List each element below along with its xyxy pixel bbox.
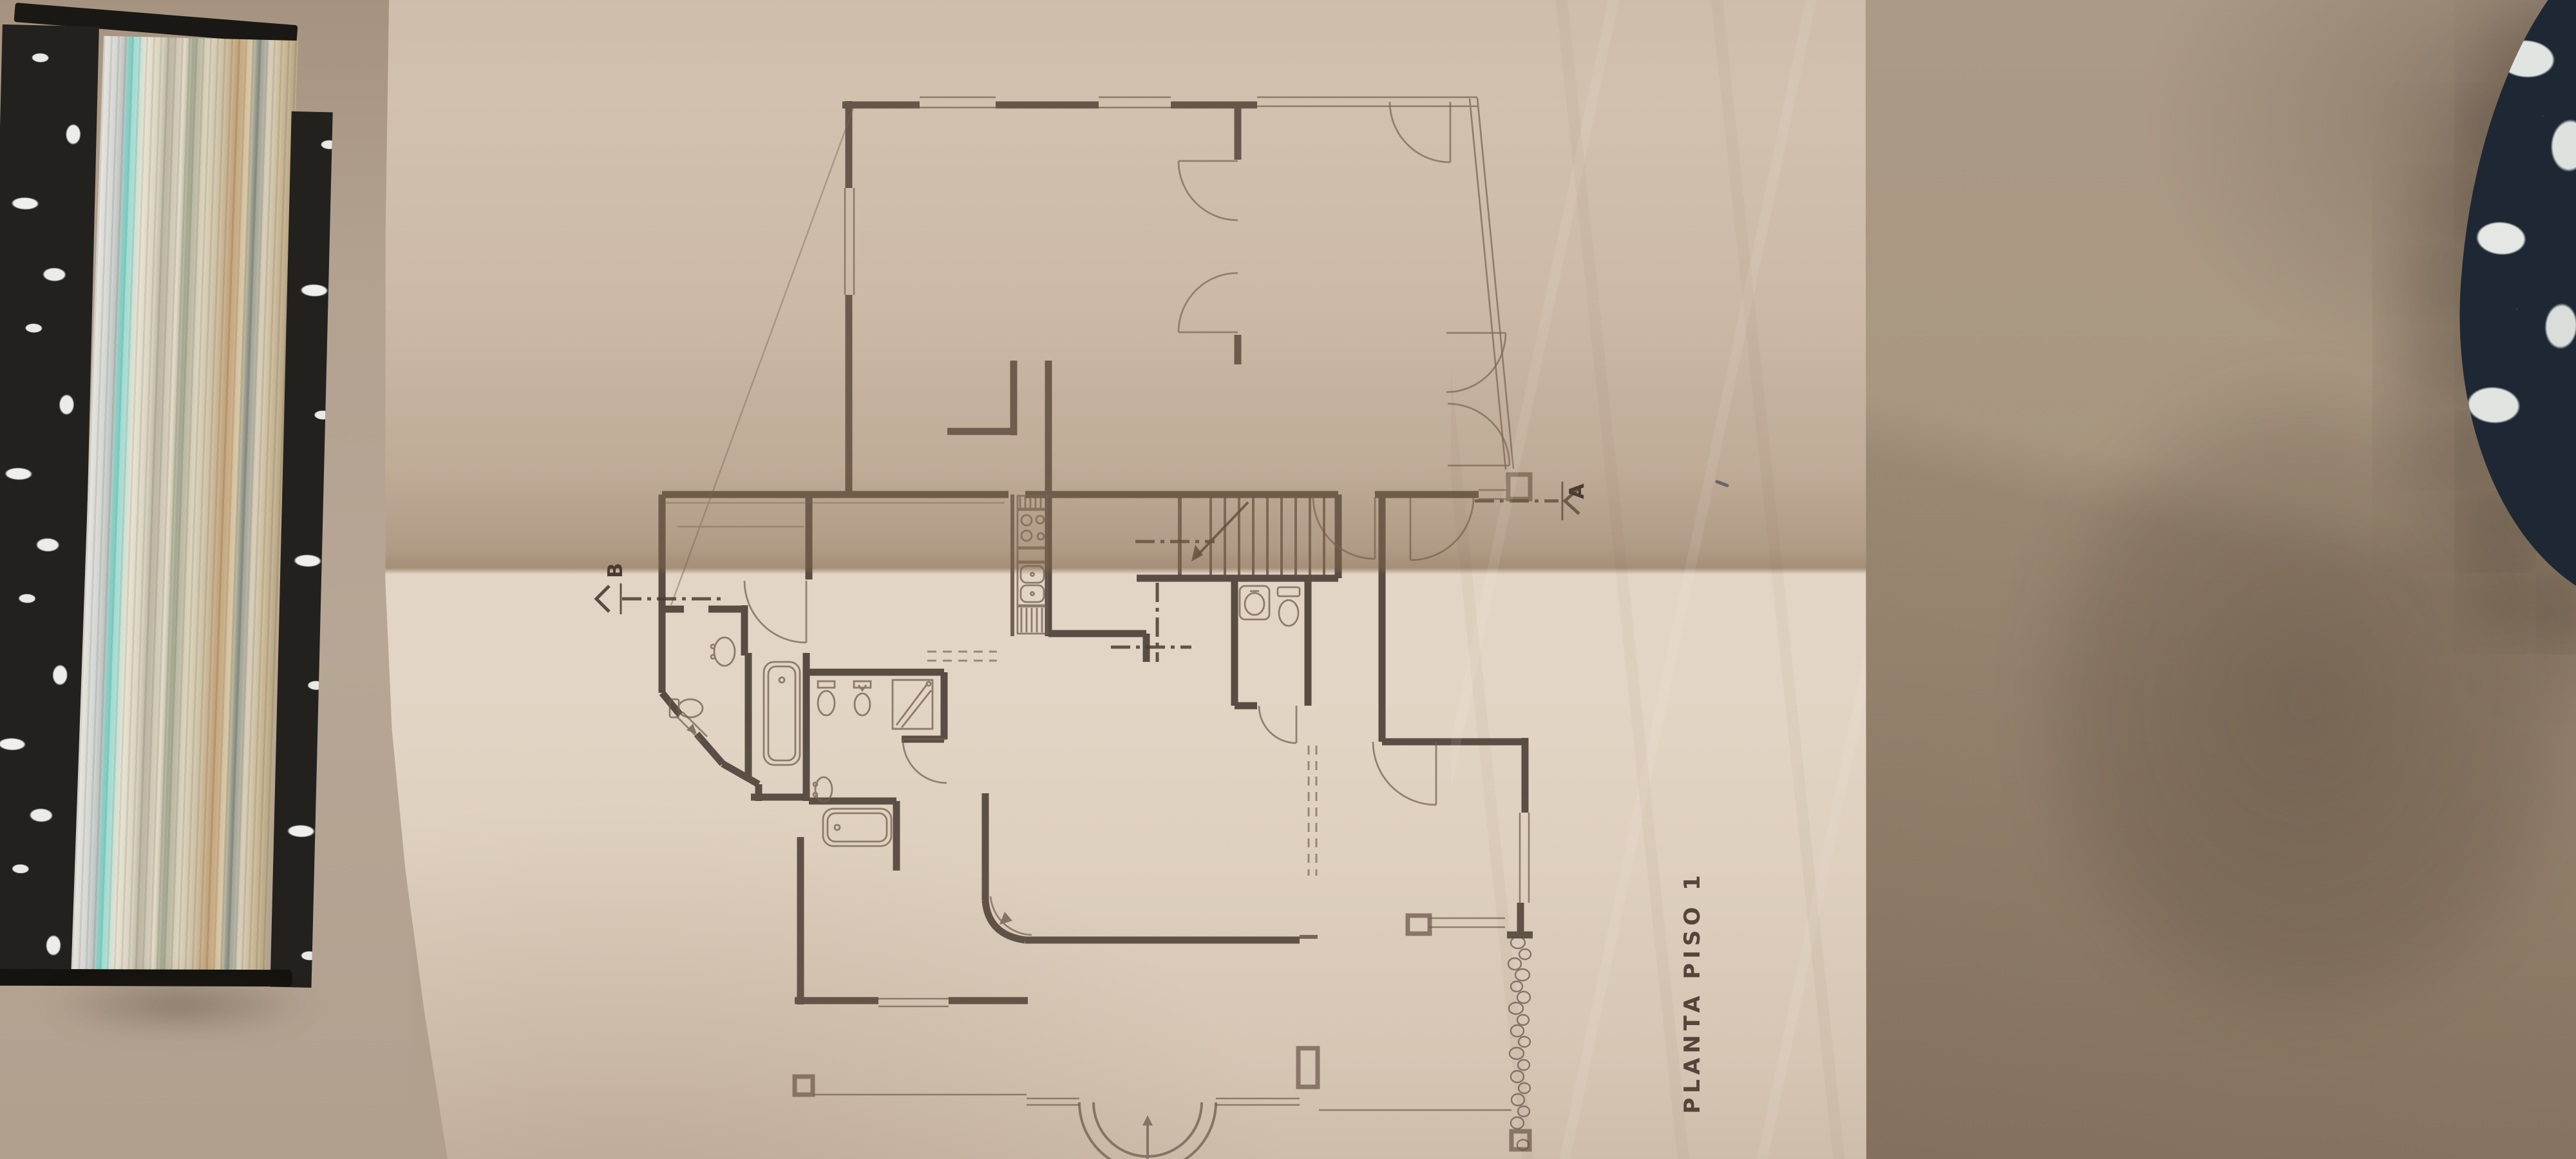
stone-wall	[1508, 937, 1531, 1150]
floor-plan-drawing	[0, 0, 2576, 1159]
guide-lines	[665, 108, 1005, 605]
section-label-a: A	[1566, 484, 1589, 499]
kitchen-fixtures	[1018, 496, 1047, 634]
walls-medium	[1012, 495, 1318, 937]
shower-fixture	[893, 680, 933, 729]
entrance-step	[1079, 1102, 1216, 1159]
section-label-b: B	[604, 563, 627, 578]
door-arc	[903, 739, 947, 783]
pen-mark	[1717, 482, 1727, 485]
bidet-fixture	[854, 681, 871, 715]
stove	[1018, 510, 1047, 547]
section-arrows	[596, 488, 1579, 612]
door-arc	[1259, 706, 1296, 743]
curved-door-arrow	[999, 912, 1012, 925]
door-arc	[1390, 102, 1450, 162]
staircase	[1191, 498, 1324, 575]
bathtub-fixture	[823, 809, 891, 846]
walls-thick	[662, 101, 1533, 1004]
wc-sink-fixture	[1240, 586, 1269, 619]
door-arc	[1373, 742, 1436, 805]
photo-scene: PLANTA PISO 1 A B	[0, 0, 2576, 1159]
door-arc	[1179, 273, 1238, 332]
post	[1298, 1048, 1318, 1087]
toilet-fixture	[818, 681, 835, 715]
plan-title: PLANTA PISO 1	[1680, 871, 1705, 1114]
wc-toilet-fixture	[1278, 587, 1300, 626]
post	[795, 1077, 813, 1095]
section-ticks	[621, 482, 1562, 614]
door-arc	[1179, 161, 1238, 220]
washbasin-fixture	[711, 637, 735, 666]
post	[1508, 475, 1530, 499]
post	[1408, 916, 1430, 934]
door-arc	[1410, 497, 1473, 560]
door-arc	[744, 581, 806, 643]
bathtub-fixture	[764, 662, 800, 765]
windows-thin	[813, 97, 1529, 1110]
door-arc	[1313, 497, 1375, 559]
